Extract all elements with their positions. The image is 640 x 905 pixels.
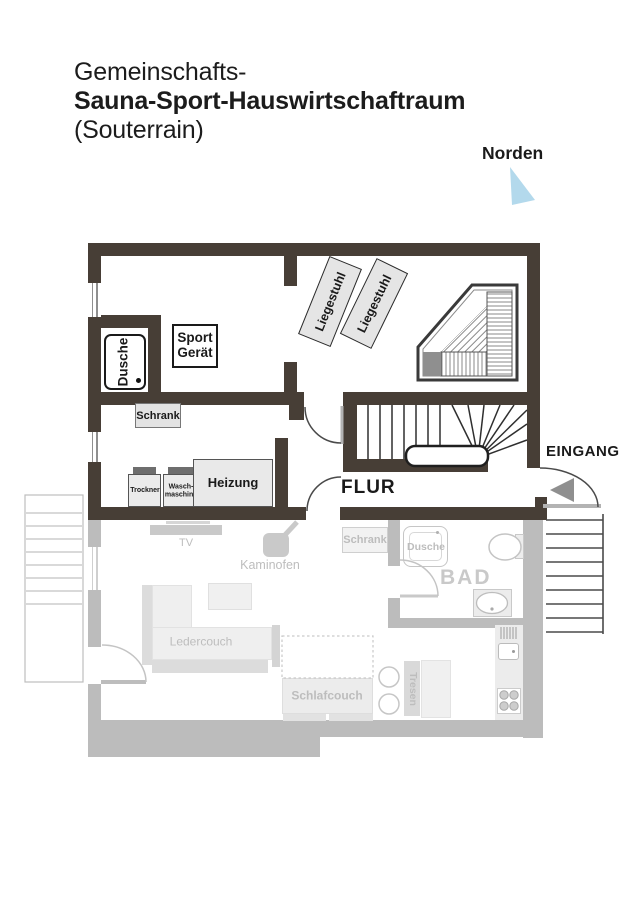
shower-drain-dot [136, 378, 141, 383]
flur-label: FLUR [341, 478, 396, 499]
couch-armrest [272, 625, 280, 667]
kitchen-sink [498, 643, 519, 660]
interior-stairs [368, 405, 527, 466]
schrank-gray-label: Schrank [343, 534, 386, 546]
couch-cushion [152, 660, 268, 673]
wall-segment [88, 317, 101, 432]
bar-counter-return [421, 660, 451, 718]
wall-segment [535, 497, 547, 509]
washbasin-counter [473, 589, 512, 617]
tresen-label: Tresen [406, 672, 418, 706]
dusche-gray-label: Dusche [407, 542, 445, 554]
kaminofen-label: Kaminofen [240, 559, 300, 573]
dusche-label: Dusche [117, 338, 132, 387]
wall-segment [275, 438, 288, 520]
wall-segment [88, 507, 306, 520]
tv-label: TV [179, 537, 193, 549]
title-line-2: Sauna-Sport-Hauswirtschaftraum [74, 87, 465, 116]
window [88, 432, 101, 462]
sport-geraet-label: SportGerät [177, 331, 212, 361]
kitchen-sink-tap [512, 650, 515, 653]
wc-label: WC [500, 540, 510, 555]
wc-cistern [515, 534, 524, 559]
washer-controls [168, 467, 194, 474]
interior-doors [305, 406, 342, 511]
wall-segment [343, 392, 540, 405]
entrance-door [540, 468, 601, 507]
wall-segment [88, 243, 101, 283]
schrank-label: Schrank [136, 410, 179, 422]
wall-segment [527, 243, 540, 468]
schlafcouch-label: Schlafcouch [291, 689, 362, 702]
wall-segment [343, 392, 357, 472]
exterior-stairs-east [546, 514, 603, 634]
page-title: Gemeinschafts- Sauna-Sport-Hauswirtschaf… [74, 58, 465, 145]
wall-segment [340, 507, 547, 520]
wall-segment [88, 720, 320, 757]
window [88, 283, 101, 317]
sauna-label: Sauna [433, 307, 472, 346]
wall-segment [101, 315, 148, 328]
wall-segment [101, 392, 304, 405]
tv-unit [150, 525, 222, 535]
wall-segment [523, 520, 543, 738]
north-label: Norden [482, 144, 543, 163]
eingang-label: EINGANG [546, 444, 620, 461]
title-line-1: Gemeinschafts- [74, 58, 465, 87]
ledercouch-label: Ledercouch [170, 635, 233, 648]
wall-segment [310, 720, 543, 737]
exterior-stairs-west [25, 495, 83, 682]
wall-segment [284, 256, 297, 286]
bad-label: BAD [440, 566, 492, 589]
wall-segment [88, 243, 540, 256]
wood-stove [263, 533, 289, 557]
north-arrow-icon [510, 167, 535, 205]
title-line-3: (Souterrain) [74, 116, 465, 145]
stove [497, 688, 521, 714]
wall-segment [289, 392, 304, 420]
wall-segment [148, 315, 161, 405]
sleeper-cushion [329, 714, 373, 721]
heizung-label: Heizung [208, 476, 259, 490]
shower-head-dot [436, 531, 439, 534]
floor-plan-page: Gemeinschafts- Sauna-Sport-Hauswirtschaf… [0, 0, 640, 905]
trockner-label: Trockner [130, 487, 160, 495]
tv-mount [166, 521, 210, 524]
sauna-cabin [418, 285, 517, 380]
wall-segment [388, 520, 400, 566]
coffee-table [208, 583, 252, 610]
wall-segment [357, 459, 488, 472]
sleeper-cushion [283, 714, 326, 721]
window [88, 547, 101, 590]
dryer-controls [133, 467, 156, 474]
couch-backrest [142, 585, 152, 665]
